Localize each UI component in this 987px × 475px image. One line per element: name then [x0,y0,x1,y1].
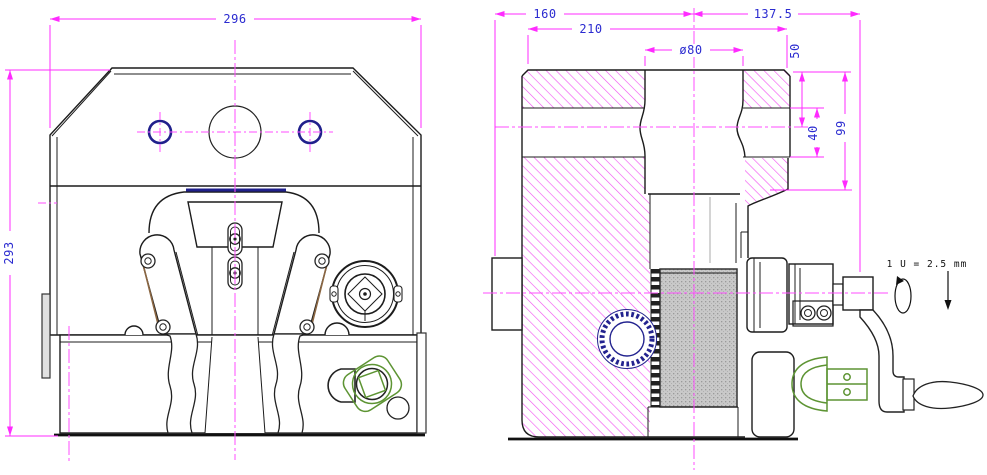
section-view [483,8,983,470]
hatch-top-left [522,70,645,108]
front-view [38,40,426,461]
bearing-housing [747,258,787,332]
hatch-main-left [522,157,650,437]
front-width-dim-label: 296 [223,12,246,26]
front-height-dim-label: 293 [2,241,16,264]
drawing-canvas: 296 293 160 137.5 210 ø80 50 40 99 1 U =… [0,0,987,475]
hatch-top-right [743,70,790,108]
side-plate-left [42,294,50,378]
crank-ratio-label: 1 U = 2.5 mm [887,259,968,270]
drive-gear [598,310,657,369]
hatch-mid-right [745,158,788,207]
depth-50-dim-label: 50 [788,43,802,58]
pin-hole [387,397,409,419]
clamp-post [640,70,745,269]
depth-99-dim-label: 99 [834,120,848,135]
technical-drawing: 296 293 160 137.5 210 ø80 50 40 99 1 U =… [0,0,987,475]
threaded-spindle-block [660,269,737,407]
side-left-span-dim-label: 160 [533,7,556,21]
side-inner-span-dim-label: 210 [579,22,602,36]
bore-diameter-dim-label: ø80 [679,43,702,57]
side-plate-right [417,333,426,433]
side-right-span-dim-label: 137.5 [754,7,793,21]
crank-grip [913,382,983,409]
depth-40-dim-label: 40 [806,125,820,140]
lower-bracket [752,352,794,437]
side-boss [492,258,522,330]
connector-green [792,357,867,411]
